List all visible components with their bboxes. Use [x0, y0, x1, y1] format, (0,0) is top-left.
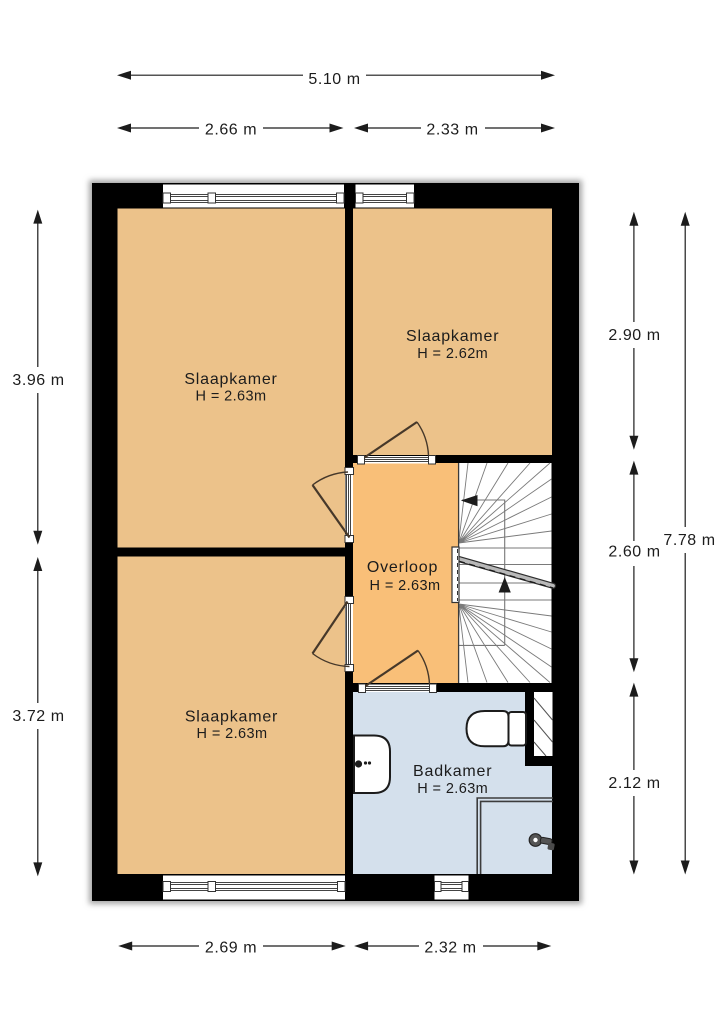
- svg-text:Badkamer: Badkamer: [413, 763, 492, 780]
- svg-text:Slaapkamer: Slaapkamer: [406, 328, 499, 345]
- svg-text:H = 2.63m: H = 2.63m: [196, 389, 267, 405]
- svg-text:2.32 m: 2.32 m: [424, 940, 476, 957]
- svg-text:H = 2.63m: H = 2.63m: [197, 726, 268, 742]
- svg-text:5.10 m: 5.10 m: [308, 71, 360, 88]
- svg-text:Slaapkamer: Slaapkamer: [185, 708, 278, 725]
- svg-text:3.72 m: 3.72 m: [12, 708, 64, 725]
- svg-text:2.66 m: 2.66 m: [205, 122, 257, 139]
- svg-text:2.33 m: 2.33 m: [426, 122, 478, 139]
- svg-text:2.69 m: 2.69 m: [205, 940, 257, 957]
- svg-text:3.96 m: 3.96 m: [12, 372, 64, 389]
- svg-text:Slaapkamer: Slaapkamer: [184, 371, 277, 388]
- svg-text:Overloop: Overloop: [367, 559, 438, 576]
- svg-text:2.90 m: 2.90 m: [608, 327, 660, 344]
- svg-text:2.60 m: 2.60 m: [608, 544, 660, 561]
- svg-text:2.12 m: 2.12 m: [608, 775, 660, 792]
- svg-text:H = 2.62m: H = 2.62m: [417, 346, 488, 362]
- svg-text:7.78 m: 7.78 m: [663, 532, 715, 549]
- svg-text:H = 2.63m: H = 2.63m: [370, 578, 441, 594]
- svg-text:H = 2.63m: H = 2.63m: [417, 781, 488, 797]
